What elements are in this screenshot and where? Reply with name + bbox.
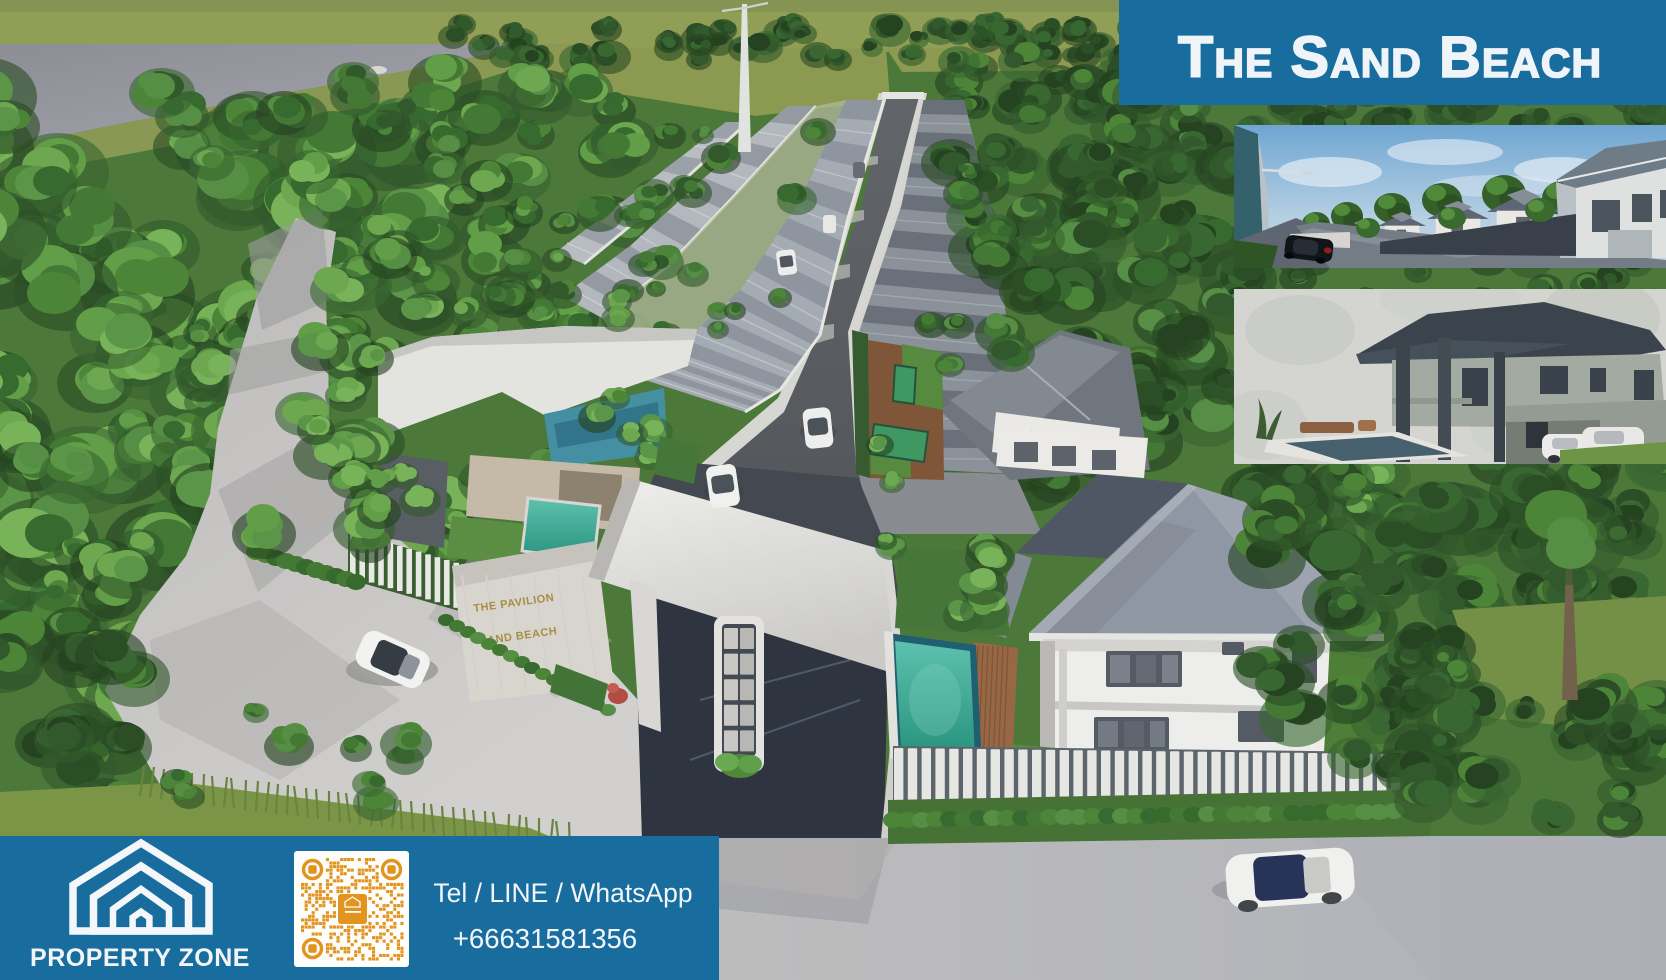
svg-text:Tel / LINE / WhatsApp: Tel / LINE / WhatsApp <box>433 878 692 908</box>
svg-text:+66631581356: +66631581356 <box>453 923 637 954</box>
svg-text:The Sand Beach: The Sand Beach <box>1178 25 1602 90</box>
svg-text:PROPERTY ZONE: PROPERTY ZONE <box>30 944 250 972</box>
